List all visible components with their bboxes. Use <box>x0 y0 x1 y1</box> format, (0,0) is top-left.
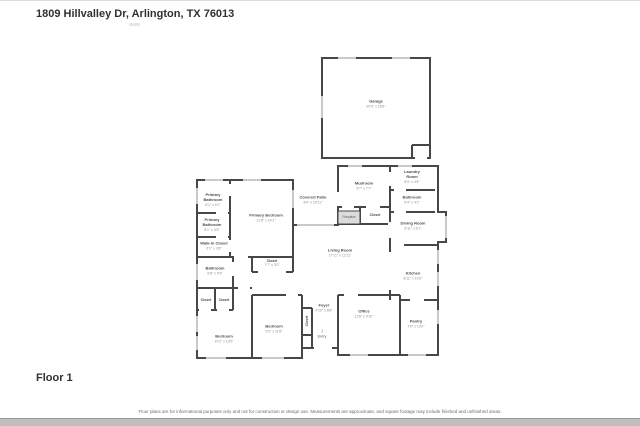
bottom-edge-band <box>0 418 640 426</box>
windows <box>197 58 446 358</box>
entry-marker: ↓ Entry <box>318 329 327 340</box>
floor-label: Floor 1 <box>36 372 73 384</box>
garage-walls <box>322 58 430 158</box>
disclaimer-text: Floor plans are for informational purpos… <box>139 409 502 414</box>
floor-plan-drawing <box>0 0 640 426</box>
fireplace-label: Fireplace <box>342 215 355 219</box>
door-openings <box>199 156 427 350</box>
floor-plan-page: 1809 Hillvalley Dr, Arlington, TX 76013 <box>0 0 640 426</box>
entry-label: Entry <box>318 336 327 340</box>
